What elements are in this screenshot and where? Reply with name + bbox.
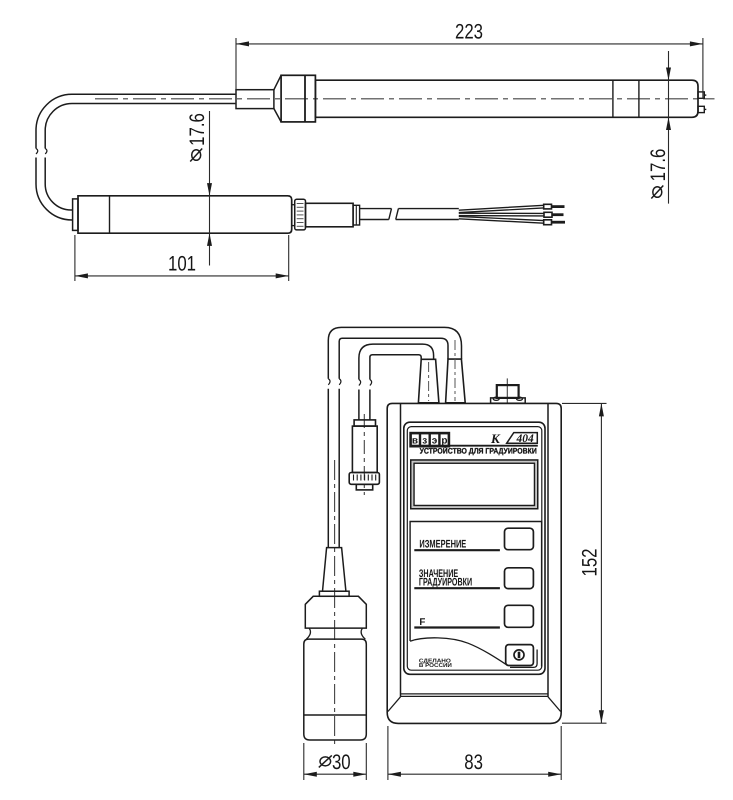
svg-text:152: 152 — [579, 548, 602, 576]
svg-text:101: 101 — [168, 253, 196, 276]
svg-text:F: F — [419, 617, 425, 628]
svg-text:К: К — [490, 431, 501, 446]
svg-text:223: 223 — [455, 21, 483, 44]
svg-text:ИЗМЕРЕНИЕ: ИЗМЕРЕНИЕ — [419, 538, 466, 550]
svg-text:83: 83 — [464, 751, 483, 774]
svg-text:17.6: 17.6 — [186, 113, 209, 146]
svg-text:УСТРОЙСТВО ДЛЯ ГРАДУИРОВКИ: УСТРОЙСТВО ДЛЯ ГРАДУИРОВКИ — [420, 446, 537, 456]
svg-text:404: 404 — [516, 433, 535, 445]
svg-text:В РОССИИ: В РОССИИ — [419, 663, 452, 669]
svg-text:30: 30 — [332, 751, 351, 774]
svg-text:ГРАДУИРОВКИ: ГРАДУИРОВКИ — [419, 577, 472, 589]
svg-text:17.6: 17.6 — [647, 149, 670, 182]
